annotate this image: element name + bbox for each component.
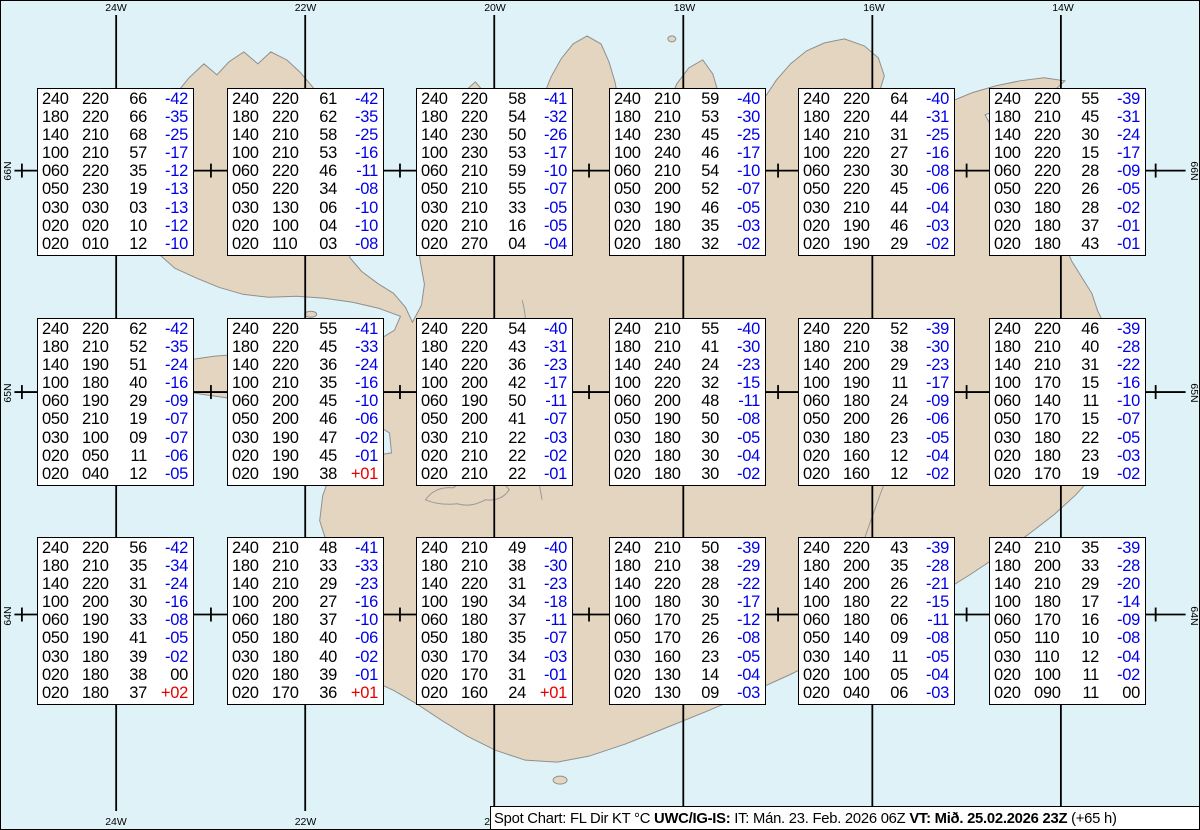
temp-value: -02 [911, 235, 949, 253]
kt-value: 24 [697, 356, 719, 374]
dir-value: 170 [1034, 374, 1074, 392]
kt-value: 52 [886, 320, 908, 338]
temp-value: -35 [150, 108, 188, 126]
kt-value: 35 [125, 557, 147, 575]
temp-value: -24 [150, 575, 188, 593]
temp-value: -23 [340, 575, 378, 593]
fl-value: 030 [803, 199, 840, 217]
kt-value: 11 [886, 374, 908, 392]
fl-value: 020 [803, 684, 840, 702]
temp-value: -41 [340, 539, 378, 557]
fl-value: 050 [614, 180, 651, 198]
spot-row: 03017034-03 [421, 648, 569, 666]
grimsey-island [668, 36, 676, 42]
latitude-label-64n: 64N [2, 606, 14, 625]
kt-value: 23 [886, 429, 908, 447]
temp-value: -39 [1102, 320, 1140, 338]
fl-value: 180 [614, 338, 651, 356]
kt-value: 50 [697, 539, 719, 557]
fl-value: 060 [42, 611, 79, 629]
temp-value: -05 [911, 648, 949, 666]
dir-value: 210 [1034, 108, 1074, 126]
spot-row: 05019041-05 [42, 629, 190, 647]
dir-value: 210 [654, 320, 694, 338]
temp-value: -03 [529, 648, 567, 666]
spot-table: 24022061-4218022062-3514021058-251002105… [227, 88, 384, 256]
fl-value: 100 [803, 593, 840, 611]
temp-value: -23 [529, 575, 567, 593]
kt-value: 53 [315, 144, 337, 162]
fl-value: 240 [42, 539, 79, 557]
kt-value: 37 [315, 611, 337, 629]
dir-value: 160 [843, 465, 883, 483]
kt-value: 35 [315, 374, 337, 392]
fl-value: 060 [42, 392, 79, 410]
dir-value: 180 [843, 593, 883, 611]
spot-table: 24022055-4118022045-3314022036-241002103… [227, 318, 384, 486]
fl-value: 050 [232, 410, 269, 428]
spot-row: 02018035-03 [614, 217, 762, 235]
dir-value: 220 [272, 180, 312, 198]
dir-value: 180 [654, 235, 694, 253]
dir-value: 180 [1034, 199, 1074, 217]
dir-value: 220 [272, 162, 312, 180]
fl-value: 240 [614, 320, 651, 338]
spot-table: 24021048-4118021033-3314021029-231002002… [227, 537, 384, 705]
temp-value: -40 [722, 320, 760, 338]
kt-value: 32 [697, 235, 719, 253]
fl-value: 180 [614, 108, 651, 126]
temp-value: +01 [340, 684, 378, 702]
temp-value: -08 [1102, 629, 1140, 647]
kt-value: 47 [315, 429, 337, 447]
fl-value: 050 [232, 629, 269, 647]
dir-value: 220 [1034, 180, 1074, 198]
temp-value: -16 [150, 374, 188, 392]
temp-value: -06 [340, 410, 378, 428]
kt-value: 44 [886, 108, 908, 126]
kt-value: 26 [886, 575, 908, 593]
spot-row: 14021029-20 [994, 575, 1142, 593]
spot-row: 05019050-08 [614, 410, 762, 428]
fl-value: 060 [994, 392, 1031, 410]
fl-value: 180 [803, 108, 840, 126]
spot-row: 18020035-28 [803, 557, 951, 575]
spot-row: 18021040-28 [994, 338, 1142, 356]
spot-row: 14021068-25 [42, 126, 190, 144]
spot-row: 02021016-05 [421, 217, 569, 235]
dir-value: 180 [654, 429, 694, 447]
kt-value: 10 [125, 217, 147, 235]
dir-value: 220 [82, 575, 122, 593]
dir-value: 200 [272, 392, 312, 410]
spot-row: 02001012-10 [42, 235, 190, 253]
spot-row: 24022055-41 [232, 320, 380, 338]
kt-value: 30 [1077, 126, 1099, 144]
fl-value: 060 [803, 611, 840, 629]
spot-row: 03014011-05 [803, 648, 951, 666]
kt-value: 22 [504, 465, 526, 483]
dir-value: 210 [461, 539, 501, 557]
temp-value: -01 [1102, 217, 1140, 235]
dir-value: 200 [843, 356, 883, 374]
kt-value: 12 [1077, 648, 1099, 666]
spot-row: 05022045-06 [803, 180, 951, 198]
longitude-label-18w: 18W [674, 2, 696, 14]
spot-row: 05020046-06 [232, 410, 380, 428]
fl-value: 140 [42, 126, 79, 144]
temp-value: +01 [340, 465, 378, 483]
fl-value: 240 [421, 320, 458, 338]
kt-value: 55 [504, 180, 526, 198]
kt-value: 09 [697, 684, 719, 702]
temp-value: -17 [911, 374, 949, 392]
temp-value: -33 [340, 338, 378, 356]
fl-value: 020 [232, 235, 269, 253]
dir-value: 210 [654, 539, 694, 557]
spot-row: 18022045-33 [232, 338, 380, 356]
spot-row: 0201803800 [42, 666, 190, 684]
spot-row: 24021048-41 [232, 539, 380, 557]
temp-value: -20 [1102, 575, 1140, 593]
dir-value: 220 [82, 90, 122, 108]
spot-table: 24022052-3918021038-3014020029-231001901… [798, 318, 955, 486]
temp-value: -10 [529, 162, 567, 180]
dir-value: 230 [461, 144, 501, 162]
dir-value: 100 [1034, 666, 1074, 684]
dir-value: 230 [654, 126, 694, 144]
temp-value: -02 [1102, 666, 1140, 684]
spot-row: 02004012-05 [42, 465, 190, 483]
longitude-label-22w: 22W [295, 2, 317, 14]
dir-value: 130 [654, 666, 694, 684]
temp-value: -09 [911, 392, 949, 410]
kt-value: 35 [125, 162, 147, 180]
temp-value: -23 [722, 356, 760, 374]
spot-row: 24022054-40 [421, 320, 569, 338]
temp-value: -03 [1102, 447, 1140, 465]
kt-value: 54 [504, 320, 526, 338]
spot-row: 14022031-24 [42, 575, 190, 593]
kt-value: 15 [1077, 374, 1099, 392]
temp-value: -21 [911, 575, 949, 593]
kt-value: 45 [1077, 108, 1099, 126]
dir-value: 220 [843, 90, 883, 108]
spot-row: 24022058-41 [421, 90, 569, 108]
kt-value: 40 [315, 648, 337, 666]
fl-value: 140 [803, 356, 840, 374]
temp-value: -03 [722, 684, 760, 702]
temp-value: -07 [529, 629, 567, 647]
kt-value: 56 [125, 539, 147, 557]
kt-value: 11 [886, 648, 908, 666]
dir-value: 130 [654, 684, 694, 702]
fl-value: 100 [803, 374, 840, 392]
fl-value: 240 [994, 539, 1031, 557]
temp-value: -10 [340, 392, 378, 410]
temp-value: -31 [911, 108, 949, 126]
spot-row: 05021019-07 [42, 410, 190, 428]
fl-value: 060 [421, 611, 458, 629]
dir-value: 210 [82, 338, 122, 356]
kt-value: 48 [697, 392, 719, 410]
dir-value: 190 [461, 392, 501, 410]
dir-value: 020 [82, 217, 122, 235]
spot-row: 10021057-17 [42, 144, 190, 162]
fl-value: 180 [42, 108, 79, 126]
dir-value: 180 [654, 447, 694, 465]
spot-row: 24022055-39 [994, 90, 1142, 108]
spot-row: 24022046-39 [994, 320, 1142, 338]
fl-value: 060 [42, 162, 79, 180]
spot-row: 03018040-02 [232, 648, 380, 666]
temp-value: -28 [1102, 338, 1140, 356]
temp-value: -09 [1102, 611, 1140, 629]
spot-table: 24022062-4218021052-3514019051-241001804… [37, 318, 194, 486]
temp-value: -03 [722, 217, 760, 235]
dir-value: 180 [843, 611, 883, 629]
fl-value: 020 [232, 666, 269, 684]
spot-row: 02019045-01 [232, 447, 380, 465]
longitude-label-20w: 20W [484, 2, 506, 14]
fl-value: 050 [232, 180, 269, 198]
kt-value: 68 [125, 126, 147, 144]
dir-value: 220 [272, 338, 312, 356]
spot-row: 03016023-05 [614, 648, 762, 666]
spot-row: 02010005-04 [803, 666, 951, 684]
fl-value: 020 [803, 465, 840, 483]
dir-value: 140 [843, 648, 883, 666]
dir-value: 210 [1034, 575, 1074, 593]
dir-value: 210 [461, 465, 501, 483]
temp-value: -07 [150, 410, 188, 428]
fl-value: 240 [421, 539, 458, 557]
spot-row: 14019051-24 [42, 356, 190, 374]
spot-row: 03018028-02 [994, 199, 1142, 217]
fl-value: 140 [994, 575, 1031, 593]
temp-value: -16 [340, 144, 378, 162]
spot-row: 18021035-34 [42, 557, 190, 575]
temp-value: -17 [529, 144, 567, 162]
dir-value: 220 [82, 162, 122, 180]
spot-row: 05022026-05 [994, 180, 1142, 198]
temp-value: -05 [150, 629, 188, 647]
temp-value: -25 [911, 126, 949, 144]
temp-value: -04 [722, 447, 760, 465]
temp-value: -02 [722, 465, 760, 483]
fl-value: 100 [614, 144, 651, 162]
kt-value: 30 [697, 429, 719, 447]
fl-value: 020 [614, 684, 651, 702]
spot-row: 02017019-02 [994, 465, 1142, 483]
temp-value: -01 [340, 447, 378, 465]
breidafjordur-islet [305, 311, 317, 317]
kt-value: 19 [125, 180, 147, 198]
fl-value: 030 [421, 429, 458, 447]
fl-value: 140 [232, 575, 269, 593]
temp-value: -16 [150, 593, 188, 611]
dir-value: 210 [1034, 338, 1074, 356]
dir-value: 100 [82, 429, 122, 447]
kt-value: 43 [1077, 235, 1099, 253]
fl-value: 020 [421, 465, 458, 483]
fl-value: 100 [421, 593, 458, 611]
dir-value: 220 [843, 539, 883, 557]
spot-table: 24021035-3918020033-2814021029-201001801… [989, 537, 1146, 705]
dir-value: 210 [1034, 356, 1074, 374]
spot-row: 06020048-11 [614, 392, 762, 410]
kt-value: 10 [1077, 629, 1099, 647]
spot-row: 14023050-26 [421, 126, 569, 144]
temp-value: -14 [1102, 593, 1140, 611]
kt-value: 40 [1077, 338, 1099, 356]
temp-value: -10 [150, 235, 188, 253]
fl-value: 180 [994, 338, 1031, 356]
spot-table: 24022055-3918021045-3114022030-241002201… [989, 88, 1146, 256]
spot-row: 06021054-10 [614, 162, 762, 180]
fl-value: 180 [994, 557, 1031, 575]
temp-value: -40 [722, 90, 760, 108]
kt-value: 33 [504, 199, 526, 217]
temp-value: -16 [911, 144, 949, 162]
dir-value: 220 [461, 356, 501, 374]
dir-value: 240 [654, 144, 694, 162]
fl-value: 020 [232, 684, 269, 702]
fl-value: 180 [803, 338, 840, 356]
temp-value: -39 [722, 539, 760, 557]
spot-row: 18021038-29 [614, 557, 762, 575]
temp-value: -10 [722, 162, 760, 180]
dir-value: 170 [1034, 611, 1074, 629]
temp-value: +01 [529, 684, 567, 702]
kt-value: 12 [125, 465, 147, 483]
dir-value: 210 [82, 126, 122, 144]
kt-value: 29 [315, 575, 337, 593]
dir-value: 200 [82, 593, 122, 611]
spot-row: 02010004-10 [232, 217, 380, 235]
kt-value: 27 [315, 593, 337, 611]
status-text: (+65 h) [1067, 811, 1116, 827]
temp-value: -06 [340, 629, 378, 647]
spot-row: 02005011-06 [42, 447, 190, 465]
dir-value: 200 [272, 410, 312, 428]
temp-value: -04 [911, 447, 949, 465]
spot-row: 06020045-10 [232, 392, 380, 410]
spot-row: 06023030-08 [803, 162, 951, 180]
dir-value: 210 [843, 126, 883, 144]
status-bar: Spot Chart: FL Dir KT °C UWC/IG-IS: IT: … [490, 806, 1199, 829]
fl-value: 100 [614, 374, 651, 392]
kt-value: 30 [125, 593, 147, 611]
kt-value: 11 [125, 447, 147, 465]
temp-value: -01 [529, 465, 567, 483]
spot-row: 06017025-12 [614, 611, 762, 629]
fl-value: 020 [614, 235, 651, 253]
fl-value: 140 [42, 356, 79, 374]
spot-row: 03018023-05 [803, 429, 951, 447]
spot-row: 10019011-17 [803, 374, 951, 392]
fl-value: 240 [42, 90, 79, 108]
dir-value: 180 [272, 666, 312, 684]
kt-value: 45 [886, 180, 908, 198]
kt-value: 45 [315, 447, 337, 465]
temp-value: -07 [529, 410, 567, 428]
spot-row: 10018040-16 [42, 374, 190, 392]
fl-value: 050 [421, 180, 458, 198]
dir-value: 210 [272, 144, 312, 162]
temp-value: -40 [529, 539, 567, 557]
temp-value: -11 [911, 611, 949, 629]
spot-row: 18021045-31 [994, 108, 1142, 126]
fl-value: 030 [42, 648, 79, 666]
spot-table: 24022066-4218022066-3514021068-251002105… [37, 88, 194, 256]
dir-value: 240 [654, 356, 694, 374]
spot-row: 02018023-03 [994, 447, 1142, 465]
latitude-label-65n: 65N [2, 383, 14, 402]
dir-value: 220 [654, 575, 694, 593]
heimaey-island [553, 776, 567, 784]
kt-value: 66 [125, 108, 147, 126]
fl-value: 180 [421, 108, 458, 126]
spot-table: 24021059-4018021053-3014023045-251002404… [609, 88, 766, 256]
fl-value: 100 [232, 593, 269, 611]
fl-value: 020 [421, 447, 458, 465]
fl-value: 180 [803, 557, 840, 575]
kt-value: 51 [125, 356, 147, 374]
dir-value: 210 [654, 162, 694, 180]
spot-table: 24021049-4018021038-3014022031-231001903… [416, 537, 573, 705]
kt-value: 55 [1077, 90, 1099, 108]
fl-value: 140 [614, 575, 651, 593]
fl-value: 140 [421, 356, 458, 374]
temp-value: -11 [529, 611, 567, 629]
spot-row: 10020030-16 [42, 593, 190, 611]
dir-value: 200 [654, 180, 694, 198]
kt-value: 11 [1077, 684, 1099, 702]
dir-value: 180 [654, 593, 694, 611]
fl-value: 060 [803, 162, 840, 180]
fl-value: 050 [994, 180, 1031, 198]
longitude-label-24w: 24W [105, 816, 127, 828]
kt-value: 46 [315, 410, 337, 428]
fl-value: 240 [803, 320, 840, 338]
dir-value: 010 [82, 235, 122, 253]
kt-value: 14 [697, 666, 719, 684]
kt-value: 22 [504, 429, 526, 447]
dir-value: 190 [843, 374, 883, 392]
spot-row: 03018030-05 [614, 429, 762, 447]
kt-value: 03 [315, 235, 337, 253]
spot-row: 02018030-02 [614, 465, 762, 483]
dir-value: 220 [272, 90, 312, 108]
dir-value: 210 [1034, 539, 1074, 557]
dir-value: 180 [1034, 593, 1074, 611]
temp-value: -12 [150, 162, 188, 180]
dir-value: 220 [843, 320, 883, 338]
temp-value: -05 [911, 429, 949, 447]
spot-row: 14021058-25 [232, 126, 380, 144]
fl-value: 050 [803, 410, 840, 428]
spot-table: 24022046-3918021040-2814021031-221001701… [989, 318, 1146, 486]
temp-value: -30 [911, 338, 949, 356]
kt-value: 39 [315, 666, 337, 684]
dir-value: 140 [843, 629, 883, 647]
dir-value: 180 [272, 611, 312, 629]
temp-value: -11 [340, 162, 378, 180]
dir-value: 180 [82, 374, 122, 392]
spot-row: 10022027-16 [803, 144, 951, 162]
longitude-label-22w: 22W [295, 816, 317, 828]
